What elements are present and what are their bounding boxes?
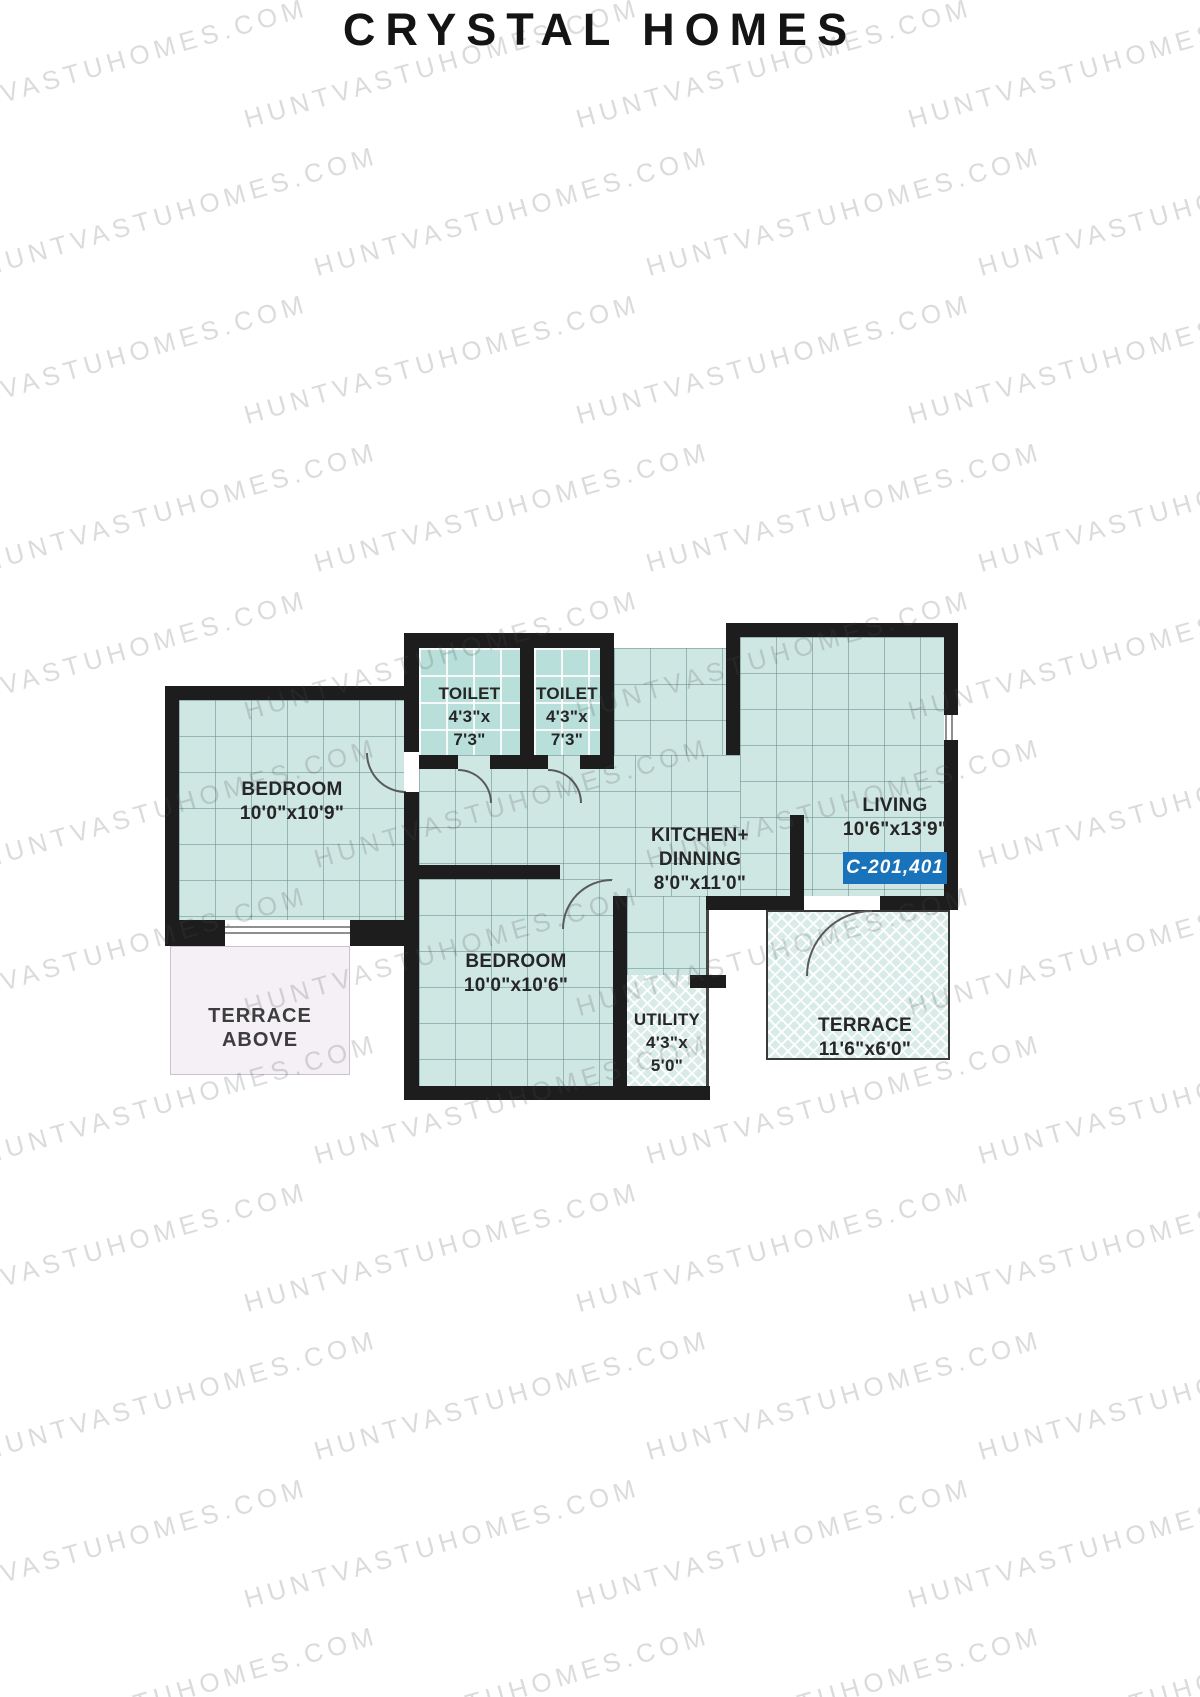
room-dims: 11'6"x6'0" (780, 1038, 950, 1062)
unit-number: C-201,401 (846, 857, 944, 879)
area-name: TERRACE (175, 1004, 345, 1028)
room-dims: 7'3" (532, 728, 602, 751)
room-dims: 10'0"x10'6" (416, 974, 616, 998)
watermark-text: HUNTVASTUHOMES.COM (241, 288, 644, 431)
watermark-text: HUNTVASTUHOMES.COM (643, 1324, 1046, 1467)
terrace-above-label: TERRACE ABOVE (175, 1004, 345, 1052)
watermark-text: HUNTVASTUHOMES.COM (0, 1176, 312, 1319)
watermark-text: HUNTVASTUHOMES.COM (573, 1176, 976, 1319)
wall-living-bottom (880, 896, 958, 910)
watermark-text: HUNTVASTUHOMES.COM (975, 1620, 1200, 1697)
watermark-text: HUNTVASTUHOMES.COM (975, 140, 1200, 283)
room-dims: 4'3"x (419, 705, 520, 728)
wall-toilet1-bottom (419, 755, 458, 769)
watermark-text: HUNTVASTUHOMES.COM (241, 1176, 644, 1319)
watermark-text: HUNTVASTUHOMES.COM (0, 1472, 312, 1615)
wall-toilet2-bottom (580, 755, 600, 769)
room-name: LIVING (810, 794, 980, 818)
bedroom1-window-line (225, 932, 350, 934)
wall-living-right (944, 623, 958, 715)
watermark-text: HUNTVASTUHOMES.COM (573, 1472, 976, 1615)
room-name: TERRACE (780, 1014, 950, 1038)
watermark-text: HUNTVASTUHOMES.COM (311, 1324, 714, 1467)
room-label-bedroom2: BEDROOM 10'0"x10'6" (416, 950, 616, 998)
room-name: BEDROOM (416, 950, 616, 974)
room-name: UTILITY (622, 1008, 712, 1031)
room-label-living: LIVING 10'6"x13'9" (810, 794, 980, 842)
room-label-kitchen: KITCHEN+ DINNING 8'0"x11'0" (610, 824, 790, 896)
room-label-toilet1: TOILET 4'3"x 7'3" (419, 682, 520, 751)
watermark-text: HUNTVASTUHOMES.COM (905, 1472, 1200, 1615)
room-name: BEDROOM (192, 778, 392, 802)
watermark-text: HUNTVASTUHOMES.COM (311, 1620, 714, 1697)
wall-bedroom1-top (165, 686, 404, 700)
wall-central-spine (404, 792, 419, 1100)
living-window-line (951, 715, 953, 740)
watermark-text: HUNTVASTUHOMES.COM (643, 140, 1046, 283)
room-name: TOILET (532, 682, 602, 705)
room-dims: 8'0"x11'0" (610, 872, 790, 896)
watermark-text: HUNTVASTUHOMES.COM (241, 1472, 644, 1615)
wall-toilets-top (404, 633, 614, 648)
watermark-text: HUNTVASTUHOMES.COM (0, 288, 312, 431)
room-dims: 10'6"x13'9" (810, 818, 980, 842)
room-label-utility: UTILITY 4'3"x 5'0" (622, 1008, 712, 1077)
wall-window-stub-left (165, 920, 225, 946)
watermark-text: HUNTVASTUHOMES.COM (975, 1028, 1200, 1171)
wall-utility-door-lintel (690, 975, 726, 988)
watermark-text: HUNTVASTUHOMES.COM (975, 1324, 1200, 1467)
watermark-text: HUNTVASTUHOMES.COM (905, 288, 1200, 431)
kitchen-utility-passage-floor (627, 896, 706, 975)
watermark-text: HUNTVASTUHOMES.COM (643, 1620, 1046, 1697)
watermark-text: HUNTVASTUHOMES.COM (975, 732, 1200, 875)
room-name: TOILET (419, 682, 520, 705)
watermark-text: HUNTVASTUHOMES.COM (573, 288, 976, 431)
watermark-text: HUNTVASTUHOMES.COM (643, 436, 1046, 579)
watermark-text: HUNTVASTUHOMES.COM (0, 436, 382, 579)
wall-bedroom1-left (165, 686, 179, 946)
wall-kitchen-living-partition (790, 815, 804, 910)
room-label-terrace: TERRACE 11'6"x6'0" (780, 1014, 950, 1062)
wall-central-spine (404, 633, 419, 752)
room-name: DINNING (610, 848, 790, 872)
room-dims: 5'0" (622, 1054, 712, 1077)
bedroom1-window-line (225, 926, 350, 928)
wall-toilet2-bottom (534, 755, 548, 769)
watermark-text: HUNTVASTUHOMES.COM (311, 436, 714, 579)
area-name: ABOVE (175, 1028, 345, 1052)
watermark-text: HUNTVASTUHOMES.COM (311, 140, 714, 283)
page: CRYSTAL HOMES BEDROOM (0, 0, 1200, 1697)
wall-bedroom2-top (404, 865, 560, 879)
wall-living-top (726, 623, 958, 637)
wall-living-left (726, 623, 740, 755)
watermark-text: HUNTVASTUHOMES.COM (0, 1620, 382, 1697)
room-dims: 7'3" (419, 728, 520, 751)
room-name: KITCHEN+ (610, 824, 790, 848)
wall-bedroom2-bottom (404, 1086, 710, 1100)
watermark-text: HUNTVASTUHOMES.COM (0, 140, 382, 283)
wall-toilet1-bottom (490, 755, 520, 769)
unit-number-badge: C-201,401 (843, 852, 947, 884)
room-dims: 4'3"x (532, 705, 602, 728)
room-dims: 10'0"x10'9" (192, 802, 392, 826)
watermark-text: HUNTVASTUHOMES.COM (0, 1324, 382, 1467)
living-window-line (945, 715, 947, 740)
room-dims: 4'3"x (622, 1031, 712, 1054)
room-label-bedroom1: BEDROOM 10'0"x10'9" (192, 778, 392, 826)
watermark-text: HUNTVASTUHOMES.COM (905, 1176, 1200, 1319)
wall-toilet2-right (600, 633, 614, 769)
room-label-toilet2: TOILET 4'3"x 7'3" (532, 682, 602, 751)
page-title: CRYSTAL HOMES (0, 4, 1200, 56)
watermark-text: HUNTVASTUHOMES.COM (975, 436, 1200, 579)
entry-passage-floor (614, 648, 726, 755)
